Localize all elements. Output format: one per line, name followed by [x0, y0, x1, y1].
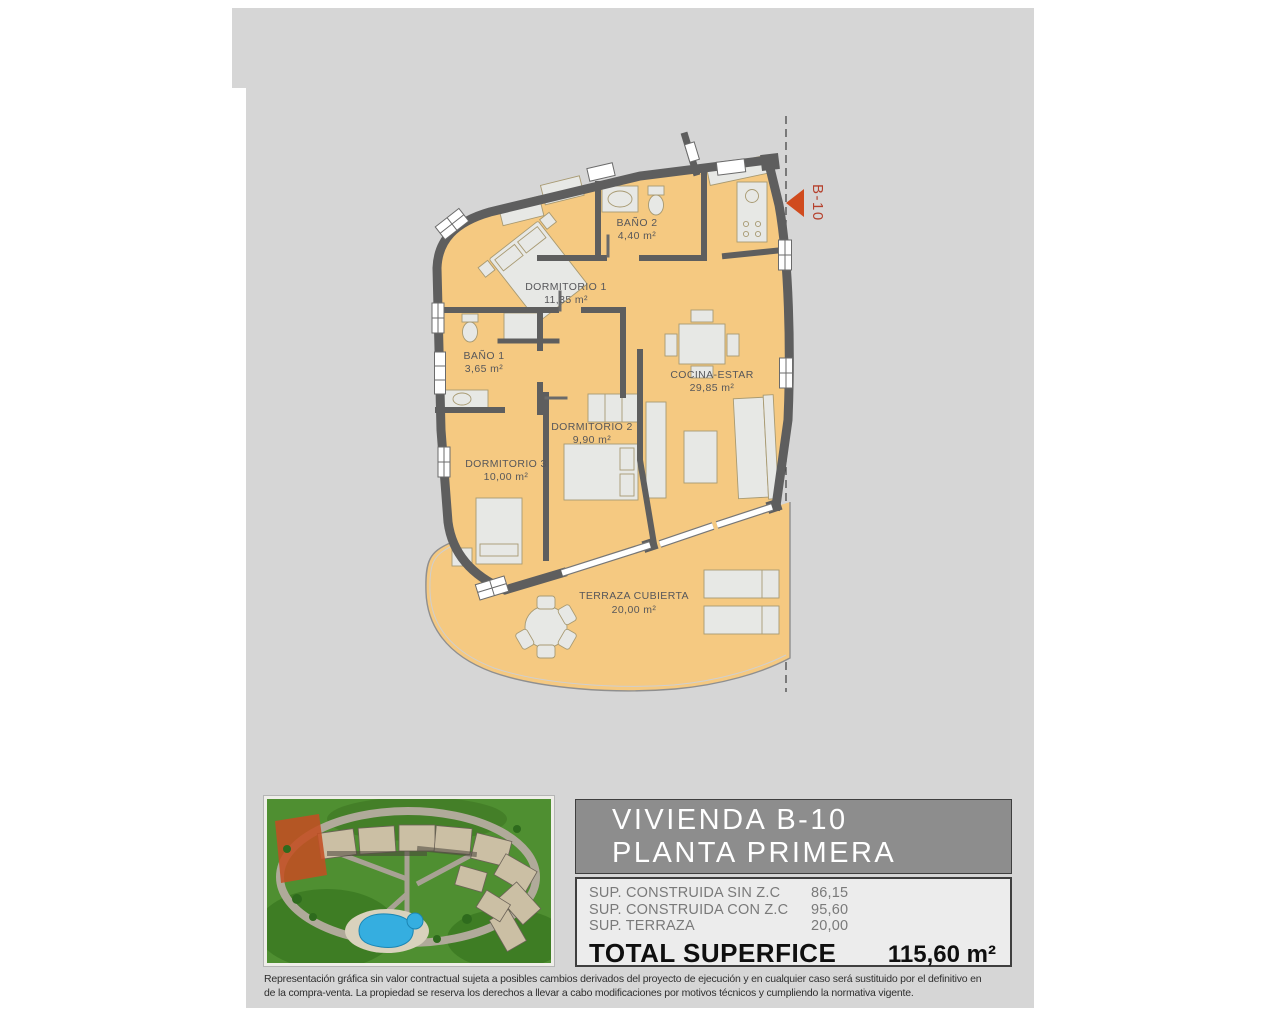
title-line1: VIVIENDA B-10 [612, 804, 1011, 837]
room-area: 20,00 m² [612, 604, 657, 616]
highlighted-block [275, 814, 327, 883]
room-area: 9,90 m² [573, 434, 611, 446]
room-area: 4,40 m² [618, 230, 656, 242]
bath2-fixtures [602, 186, 664, 215]
room-area: 3,65 m² [465, 363, 503, 375]
title-panel: VIVIENDA B-10 PLANTA PRIMERA [575, 799, 1012, 874]
total-value: 115,60 m² [888, 941, 1000, 969]
surface-label: SUP. CONSTRUIDA SIN Z.C [589, 885, 811, 902]
room-label: DORMITORIO 1 [525, 281, 607, 293]
plan-sheet: BAÑO 2 4,40 m² DORMITORIO 1 11,35 m² BAÑ… [0, 0, 1280, 1024]
surface-value: 86,15 [811, 885, 871, 902]
total-label: TOTAL SUPERFICE [589, 938, 836, 969]
surface-row: SUP. TERRAZA 20,00 [589, 918, 1000, 935]
room-label: BAÑO 2 [617, 216, 658, 229]
room-label: TERRAZA CUBIERTA [579, 590, 689, 602]
surface-value: 20,00 [811, 918, 871, 935]
disclaimer-line2: de la compra-venta. La propiedad se rese… [264, 987, 1034, 1001]
surface-value: 95,60 [811, 902, 871, 919]
unit-marker-label: B-10 [809, 184, 826, 222]
aerial-thumbnail-image [267, 799, 551, 963]
room-label: COCINA-ESTAR [670, 369, 753, 381]
room-label: BAÑO 1 [464, 349, 505, 362]
room-area: 11,35 m² [544, 294, 588, 306]
surface-label: SUP. TERRAZA [589, 918, 811, 935]
surface-row: SUP. CONSTRUIDA CON Z.C 95,60 [589, 902, 1000, 919]
surface-panel: SUP. CONSTRUIDA SIN Z.C 86,15 SUP. CONST… [575, 877, 1012, 967]
total-row: TOTAL SUPERFICE 115,60 m² [589, 938, 1000, 969]
unit-marker: B-10 [786, 184, 826, 222]
room-label: DORMITORIO 2 [551, 421, 633, 433]
surface-row: SUP. CONSTRUIDA SIN Z.C 86,15 [589, 885, 1000, 902]
room-label: DORMITORIO 3 [465, 458, 547, 470]
surface-label: SUP. CONSTRUIDA CON Z.C [589, 902, 811, 919]
title-line2: PLANTA PRIMERA [612, 837, 1011, 870]
disclaimer: Representación gráfica sin valor contrac… [264, 973, 1034, 1000]
aerial-thumbnail [264, 796, 554, 966]
arrow-left-icon [786, 189, 804, 217]
room-area: 10,00 m² [484, 471, 529, 483]
room-area: 29,85 m² [690, 382, 735, 394]
disclaimer-line1: Representación gráfica sin valor contrac… [264, 973, 1034, 987]
